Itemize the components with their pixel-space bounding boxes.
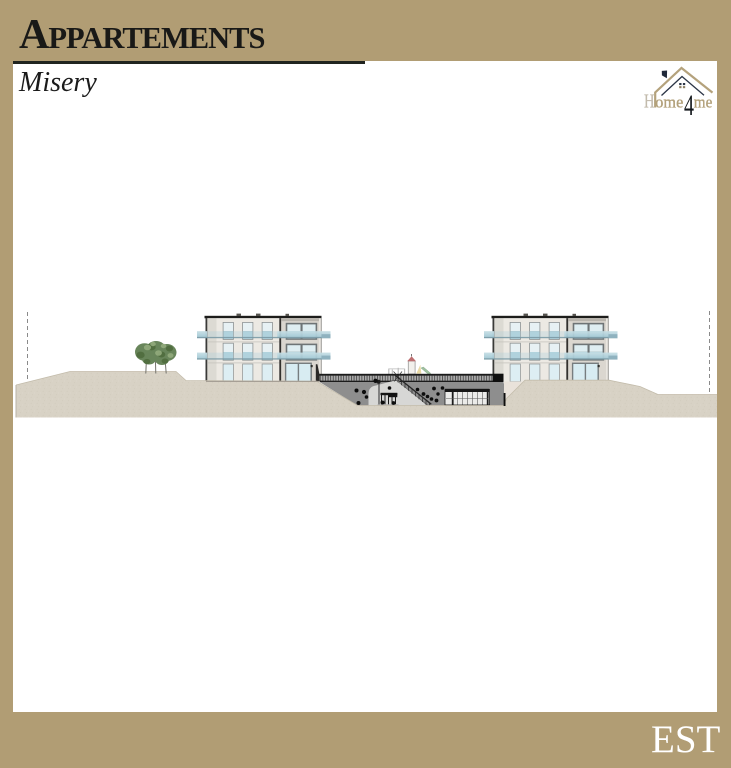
svg-text:ome: ome bbox=[655, 93, 683, 112]
svg-text:4: 4 bbox=[684, 89, 694, 120]
svg-text:me: me bbox=[694, 93, 713, 112]
svg-text:H: H bbox=[644, 91, 655, 113]
